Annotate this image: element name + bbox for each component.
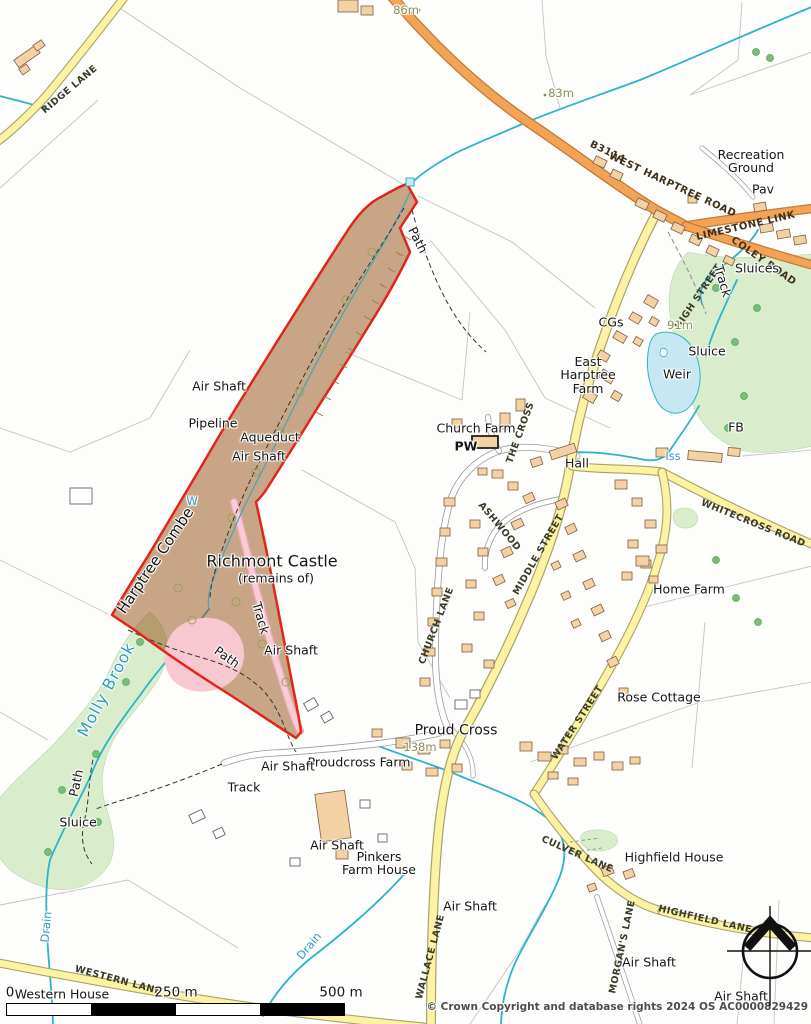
map: RIDGE LANE 86m 83m B3114 WEST HARPTREE R… [0,0,811,1024]
map-canvas [0,0,811,1024]
compass-north-icon [723,904,811,1009]
scale-bar [6,1003,345,1016]
